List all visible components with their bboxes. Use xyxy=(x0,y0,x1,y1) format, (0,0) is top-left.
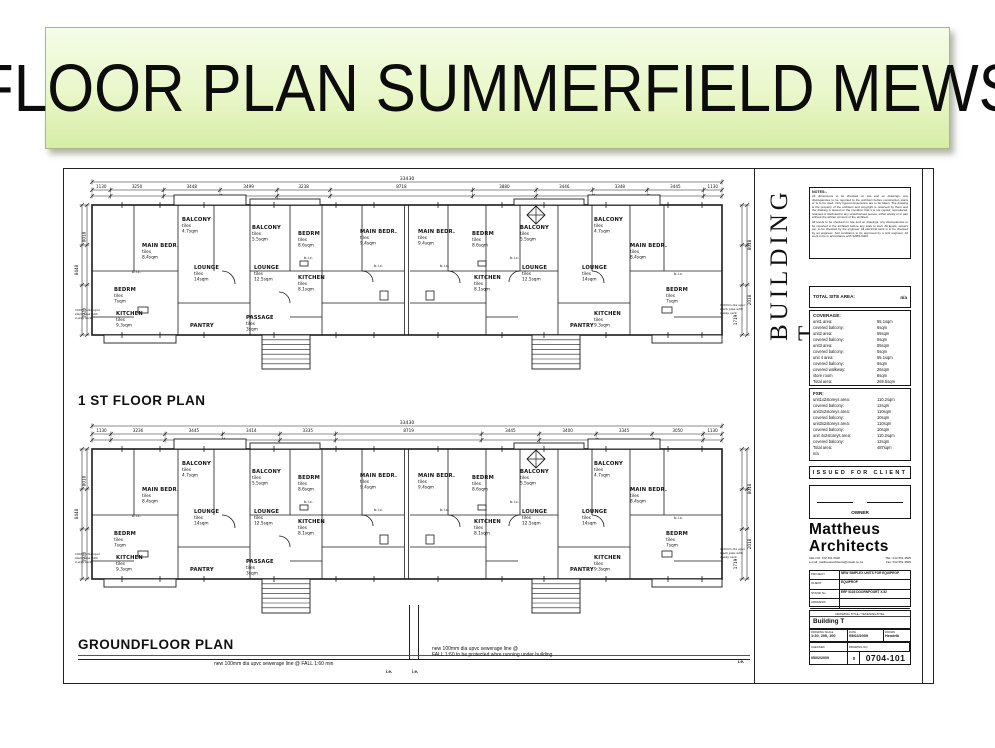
svg-text:tiles: tiles xyxy=(418,235,428,241)
svg-text:tiles: tiles xyxy=(298,525,308,531)
total-site-area-box: TOTAL SITE AREA: n/a xyxy=(809,286,911,308)
svg-text:tiles: tiles xyxy=(472,481,482,487)
svg-text:8018: 8018 xyxy=(82,231,87,242)
svg-text:tiles: tiles xyxy=(666,293,676,299)
project-table: PROJECTNEW SIMPLEX UNITS FOR EQUIPROPCLI… xyxy=(809,570,911,607)
svg-text:BEDRM: BEDRM xyxy=(666,531,688,537)
svg-text:8018: 8018 xyxy=(747,239,752,250)
svg-text:8.6sqm: 8.6sqm xyxy=(298,487,314,493)
date-value: 05/02/2009 xyxy=(849,634,882,638)
architect-firm-name: Mattheus Architects xyxy=(809,522,911,555)
svg-text:LOUNGE: LOUNGE xyxy=(522,509,547,515)
svg-text:7sqm: 7sqm xyxy=(114,543,126,549)
date-cell: DATE 05/02/2009 xyxy=(848,630,884,641)
svg-text:tiles: tiles xyxy=(474,525,484,531)
svg-text:KITCHEN: KITCHEN xyxy=(298,519,325,525)
svg-text:tiles: tiles xyxy=(116,317,126,323)
architect-contacts: CEL NO: 072 461 6620 TEL: 012 551 4505 e… xyxy=(809,557,911,565)
svg-text:8.6sqm: 8.6sqm xyxy=(298,243,314,249)
svg-text:9.4sqm: 9.4sqm xyxy=(418,485,434,491)
svg-text:tiles: tiles xyxy=(630,493,640,499)
issued-label: ISSUED FOR CLIENT xyxy=(813,470,908,476)
svg-text:3448: 3448 xyxy=(187,184,198,189)
svg-text:8.4sqm: 8.4sqm xyxy=(142,255,158,261)
svg-text:tiles: tiles xyxy=(582,515,592,521)
ie-mark: i.e. xyxy=(386,669,392,674)
ie-mark: i.e. xyxy=(738,659,744,664)
table-row: STAND NoERF 5135 DOORNPOORT X.52 xyxy=(810,590,910,599)
drawn-cell: DRAWN Hendrik xyxy=(884,630,910,641)
svg-text:2-way vent: 2-way vent xyxy=(75,316,93,320)
sewerage-note-right-line2: FALL 1:60 to be protected whre running u… xyxy=(432,652,552,658)
svg-text:tiles: tiles xyxy=(116,561,126,567)
svg-text:tiles: tiles xyxy=(594,467,604,473)
svg-text:9.3sqm: 9.3sqm xyxy=(116,567,132,573)
sewerage-line xyxy=(78,659,750,660)
svg-text:5.5sqm: 5.5sqm xyxy=(520,481,536,487)
svg-text:LOUNGE: LOUNGE xyxy=(194,265,219,271)
svg-text:3445: 3445 xyxy=(505,428,516,433)
svg-text:2018: 2018 xyxy=(747,294,752,305)
notes-box: NOTES:- All dimensions to be checked on … xyxy=(809,187,911,259)
svg-text:9.4sqm: 9.4sqm xyxy=(360,485,376,491)
svg-text:tiles: tiles xyxy=(142,249,152,255)
svg-text:tiles: tiles xyxy=(182,223,192,229)
table-row: Total area:269.5sqm xyxy=(813,379,907,385)
coverage-heading: COVERAGE: xyxy=(813,313,910,318)
svg-text:3445: 3445 xyxy=(670,184,681,189)
first-floor-plan-drawing: 3343011303250344834993238871838803446334… xyxy=(74,175,754,395)
svg-text:MAIN BEDR.: MAIN BEDR. xyxy=(360,473,397,479)
fsr-box: FSR: unit1x2storeys area:110.2sqmcovered… xyxy=(809,388,911,461)
svg-text:PANTRY: PANTRY xyxy=(190,323,214,329)
drawn-value: Hendrik xyxy=(885,634,909,638)
title-banner: FLOOR PLAN SUMMERFIELD MEWS xyxy=(45,27,950,149)
first-floor-plan-title: 1 ST FLOOR PLAN xyxy=(78,393,206,408)
svg-text:8448: 8448 xyxy=(74,264,79,275)
svg-text:b.i.c.: b.i.c. xyxy=(374,507,383,512)
sewerage-note-left: new 100mm dia upvc sewerage line @ FALL … xyxy=(214,661,333,667)
svg-text:BEDRM: BEDRM xyxy=(666,287,688,293)
svg-text:3445: 3445 xyxy=(189,428,200,433)
svg-text:tiles: tiles xyxy=(594,561,604,567)
svg-text:b.i.c.: b.i.c. xyxy=(674,271,683,276)
sewerage-note-right: new 100mm dia upvc sewerage line @ FALL … xyxy=(432,646,552,658)
svg-text:BALCONY: BALCONY xyxy=(182,217,211,223)
svg-text:8448: 8448 xyxy=(74,508,79,519)
svg-text:9.3sqm: 9.3sqm xyxy=(594,567,610,573)
svg-text:8.6sqm: 8.6sqm xyxy=(472,243,488,249)
title-block: NOTES:- All dimensions to be checked on … xyxy=(809,169,913,683)
svg-text:3sqm: 3sqm xyxy=(246,571,258,577)
svg-text:1719: 1719 xyxy=(733,314,738,325)
svg-text:tiles: tiles xyxy=(298,237,308,243)
svg-text:BALCONY: BALCONY xyxy=(252,225,281,231)
svg-text:tiles: tiles xyxy=(594,317,604,323)
svg-text:LOUNGE: LOUNGE xyxy=(194,509,219,515)
svg-text:b.i.c.: b.i.c. xyxy=(510,255,519,260)
table-row: n/a xyxy=(813,451,907,457)
svg-text:14sqm: 14sqm xyxy=(194,521,209,527)
svg-text:tiles: tiles xyxy=(194,515,204,521)
svg-text:BALCONY: BALCONY xyxy=(182,461,211,467)
contact-fax: Fax: 012 551 4505 xyxy=(886,561,911,565)
svg-text:MAIN BEDR.: MAIN BEDR. xyxy=(630,243,667,249)
svg-text:LOUNGE: LOUNGE xyxy=(582,509,607,515)
svg-text:3400: 3400 xyxy=(562,428,573,433)
svg-text:BALCONY: BALCONY xyxy=(594,217,623,223)
ground-floor-plan-drawing: 3343011303236344534143335871934453400334… xyxy=(74,419,754,639)
svg-text:LOUNGE: LOUNGE xyxy=(254,509,279,515)
svg-text:tiles: tiles xyxy=(522,515,532,521)
drawing-number-block: CHECKED DRAWING NO 05/02/2009 0 0704-101 xyxy=(809,642,911,665)
svg-text:7sqm: 7sqm xyxy=(114,299,126,305)
svg-text:PANTRY: PANTRY xyxy=(570,323,594,329)
svg-text:4.7sqm: 4.7sqm xyxy=(594,229,610,235)
svg-text:tiles: tiles xyxy=(666,537,676,543)
svg-text:tiles: tiles xyxy=(298,281,308,287)
contact-email: e-mail: mattheusarchitects@mweb.co.za xyxy=(809,561,863,565)
svg-text:tiles: tiles xyxy=(194,271,204,277)
svg-text:8018: 8018 xyxy=(747,483,752,494)
svg-text:KITCHEN: KITCHEN xyxy=(594,311,621,317)
svg-text:BEDRM: BEDRM xyxy=(114,287,136,293)
svg-text:3050: 3050 xyxy=(672,428,683,433)
svg-text:b.i.c.: b.i.c. xyxy=(440,507,449,512)
svg-text:2018: 2018 xyxy=(747,538,752,549)
svg-text:8.1sqm: 8.1sqm xyxy=(474,531,490,537)
svg-text:tiles: tiles xyxy=(182,467,192,473)
svg-text:b.i.c.: b.i.c. xyxy=(132,269,141,274)
checked-label: CHECKED xyxy=(810,643,848,652)
svg-text:9.4sqm: 9.4sqm xyxy=(418,241,434,247)
svg-text:tiles: tiles xyxy=(474,281,484,287)
ground-floor-plan-title: GROUNDFLOOR PLAN xyxy=(78,637,234,652)
fsr-table: unit1x2storeys area:110.2sqmcovered balc… xyxy=(810,397,910,457)
svg-text:b.i.c.: b.i.c. xyxy=(304,499,313,504)
svg-text:8.1sqm: 8.1sqm xyxy=(298,287,314,293)
svg-text:8.6sqm: 8.6sqm xyxy=(472,487,488,493)
svg-text:1719: 1719 xyxy=(733,558,738,569)
total-site-value: n/a xyxy=(900,295,907,300)
svg-text:5.5sqm: 5.5sqm xyxy=(252,481,268,487)
svg-text:8018: 8018 xyxy=(82,475,87,486)
drawing-number-value: 0704-101 xyxy=(860,652,910,665)
svg-text:3238: 3238 xyxy=(298,184,309,189)
svg-text:3345: 3345 xyxy=(619,428,630,433)
table-row: ADDRESS xyxy=(810,599,910,608)
svg-text:PASSAGE: PASSAGE xyxy=(246,559,274,565)
slide-title: FLOOR PLAN SUMMERFIELD MEWS xyxy=(0,50,995,127)
svg-text:LOUNGE: LOUNGE xyxy=(254,265,279,271)
svg-text:3880: 3880 xyxy=(499,184,510,189)
svg-text:8719: 8719 xyxy=(403,428,414,433)
svg-text:KITCHEN: KITCHEN xyxy=(474,275,501,281)
svg-text:3446: 3446 xyxy=(559,184,570,189)
svg-text:LOUNGE: LOUNGE xyxy=(582,265,607,271)
svg-text:tiles: tiles xyxy=(252,231,262,237)
scale-value: 1:20, 200, 100 xyxy=(811,634,846,638)
scale-cell: DRAWING SCALE 1:20, 200, 100 xyxy=(810,630,848,641)
svg-text:8.1sqm: 8.1sqm xyxy=(474,287,490,293)
svg-text:KITCHEN: KITCHEN xyxy=(116,555,143,561)
svg-text:12.5sqm: 12.5sqm xyxy=(522,277,541,283)
svg-text:tiles: tiles xyxy=(522,271,532,277)
sewerage-line xyxy=(78,655,750,656)
svg-text:b.i.c.: b.i.c. xyxy=(304,255,313,260)
svg-text:3250: 3250 xyxy=(132,184,143,189)
inner-frame-line xyxy=(922,169,923,683)
svg-text:tiles: tiles xyxy=(254,515,264,521)
svg-text:KITCHEN: KITCHEN xyxy=(298,275,325,281)
notes-paragraph: All levels to be checked on site and on … xyxy=(812,221,908,239)
svg-text:7sqm: 7sqm xyxy=(666,543,678,549)
svg-text:tiles: tiles xyxy=(520,475,530,481)
svg-text:tiles: tiles xyxy=(520,231,530,237)
svg-text:tiles: tiles xyxy=(360,235,370,241)
svg-text:5.5sqm: 5.5sqm xyxy=(520,237,536,243)
drawing-sheet: 3343011303250344834993238871838803446334… xyxy=(63,168,934,684)
svg-text:BEDRM: BEDRM xyxy=(298,231,320,237)
svg-text:MAIN BEDR.: MAIN BEDR. xyxy=(418,473,455,479)
firm-line1: Mattheus xyxy=(809,522,911,539)
fsr-heading: FSR: xyxy=(813,391,910,396)
svg-text:BALCONY: BALCONY xyxy=(520,469,549,475)
svg-text:3335: 3335 xyxy=(303,428,314,433)
svg-text:tiles: tiles xyxy=(472,237,482,243)
svg-text:BALCONY: BALCONY xyxy=(520,225,549,231)
svg-text:14sqm: 14sqm xyxy=(194,277,209,283)
drawing-no-label: DRAWING NO xyxy=(848,643,910,652)
svg-text:b.i.c.: b.i.c. xyxy=(674,515,683,520)
table-row: PROJECTNEW SIMPLEX UNITS FOR EQUIPROP xyxy=(810,571,910,580)
svg-text:b.i.c.: b.i.c. xyxy=(132,513,141,518)
ie-mark: i.e. xyxy=(412,669,418,674)
scale-date-drawn-row: DRAWING SCALE 1:20, 200, 100 DATE 05/02/… xyxy=(809,629,911,642)
svg-text:12.5sqm: 12.5sqm xyxy=(254,521,273,527)
svg-text:BALCONY: BALCONY xyxy=(594,461,623,467)
svg-text:tiles: tiles xyxy=(114,293,124,299)
svg-text:8.4sqm: 8.4sqm xyxy=(630,255,646,261)
svg-text:7sqm: 7sqm xyxy=(666,299,678,305)
svg-text:BEDRM: BEDRM xyxy=(472,475,494,481)
notes-text: All dimensions to be checked on site and… xyxy=(810,195,910,239)
notes-paragraph: All dimensions to be checked on site and… xyxy=(812,195,908,220)
svg-text:3414: 3414 xyxy=(246,428,257,433)
svg-text:4.7sqm: 4.7sqm xyxy=(182,229,198,235)
revision-value: 0 xyxy=(848,652,860,665)
svg-text:1130: 1130 xyxy=(96,184,107,189)
svg-text:tiles: tiles xyxy=(114,537,124,543)
svg-text:tiles: tiles xyxy=(360,479,370,485)
svg-text:14sqm: 14sqm xyxy=(582,521,597,527)
svg-text:MAIN BEDR.: MAIN BEDR. xyxy=(142,487,179,493)
svg-text:tiles: tiles xyxy=(252,475,262,481)
svg-text:33430: 33430 xyxy=(400,420,415,426)
table-row: CLIENTEQUIPROP xyxy=(810,580,910,589)
coverage-table: unit1 area:55.1sqmcovered balcony:6sqmun… xyxy=(810,319,910,385)
svg-text:MAIN BEDR.: MAIN BEDR. xyxy=(630,487,667,493)
drawing-title-value: Building T xyxy=(810,617,910,625)
svg-text:tiles: tiles xyxy=(418,479,428,485)
svg-text:12.5sqm: 12.5sqm xyxy=(254,277,273,283)
svg-text:14sqm: 14sqm xyxy=(582,277,597,283)
svg-text:MAIN BEDR.: MAIN BEDR. xyxy=(418,229,455,235)
svg-text:8.4sqm: 8.4sqm xyxy=(630,499,646,505)
svg-text:8718: 8718 xyxy=(396,184,407,189)
svg-text:b.i.c.: b.i.c. xyxy=(374,263,383,268)
svg-text:tiles: tiles xyxy=(142,493,152,499)
svg-text:2-way vent: 2-way vent xyxy=(75,560,93,564)
svg-text:5.5sqm: 5.5sqm xyxy=(252,237,268,243)
svg-text:BEDRM: BEDRM xyxy=(472,231,494,237)
owner-label: OWNER xyxy=(810,510,910,515)
svg-text:tiles: tiles xyxy=(246,565,256,571)
drawing-title-box: DRAWING TITLE / TEKENINGTITEL Building T xyxy=(809,610,911,629)
notes-heading: NOTES:- xyxy=(812,190,908,194)
svg-text:1130: 1130 xyxy=(707,428,718,433)
svg-text:9.3sqm: 9.3sqm xyxy=(594,323,610,329)
owner-box: OWNER xyxy=(809,485,911,519)
svg-text:KITCHEN: KITCHEN xyxy=(594,555,621,561)
svg-text:b.i.c.: b.i.c. xyxy=(510,499,519,504)
svg-text:3sqm: 3sqm xyxy=(246,327,258,333)
svg-text:3236: 3236 xyxy=(133,428,144,433)
svg-text:MAIN BEDR.: MAIN BEDR. xyxy=(360,229,397,235)
svg-text:9.4sqm: 9.4sqm xyxy=(360,241,376,247)
svg-text:1130: 1130 xyxy=(96,428,107,433)
svg-text:BEDRM: BEDRM xyxy=(298,475,320,481)
firm-line2: Architects xyxy=(809,539,911,556)
svg-text:3348: 3348 xyxy=(615,184,626,189)
svg-text:tiles: tiles xyxy=(246,321,256,327)
svg-text:8.4sqm: 8.4sqm xyxy=(142,499,158,505)
svg-text:tiles: tiles xyxy=(582,271,592,277)
svg-text:BALCONY: BALCONY xyxy=(252,469,281,475)
svg-text:BEDRM: BEDRM xyxy=(114,531,136,537)
svg-text:tiles: tiles xyxy=(630,249,640,255)
svg-text:PANTRY: PANTRY xyxy=(190,567,214,573)
svg-text:4.7sqm: 4.7sqm xyxy=(182,473,198,479)
svg-text:b.i.c.: b.i.c. xyxy=(440,263,449,268)
issued-for-client-box: ISSUED FOR CLIENT xyxy=(809,466,911,479)
date-passed-value: 05/02/2009 xyxy=(810,652,848,665)
svg-text:1130: 1130 xyxy=(708,184,719,189)
titleblock-divider xyxy=(754,169,755,683)
svg-text:tiles: tiles xyxy=(254,271,264,277)
svg-text:MAIN BEDR.: MAIN BEDR. xyxy=(142,243,179,249)
svg-text:8.1sqm: 8.1sqm xyxy=(298,531,314,537)
signature-lines xyxy=(810,502,910,503)
svg-text:2-way vent: 2-way vent xyxy=(720,311,738,315)
svg-text:9.3sqm: 9.3sqm xyxy=(116,323,132,329)
svg-text:12.5sqm: 12.5sqm xyxy=(522,521,541,527)
svg-text:4.7sqm: 4.7sqm xyxy=(594,473,610,479)
slide: FLOOR PLAN SUMMERFIELD MEWS 334301130325… xyxy=(0,0,995,748)
svg-text:tiles: tiles xyxy=(594,223,604,229)
total-site-label: TOTAL SITE AREA: xyxy=(813,294,859,299)
svg-text:KITCHEN: KITCHEN xyxy=(116,311,143,317)
svg-text:LOUNGE: LOUNGE xyxy=(522,265,547,271)
svg-text:2-way vent: 2-way vent xyxy=(720,555,738,559)
svg-text:33430: 33430 xyxy=(400,176,415,182)
svg-text:tiles: tiles xyxy=(298,481,308,487)
coverage-box: COVERAGE: unit1 area:55.1sqmcovered balc… xyxy=(809,310,911,386)
svg-text:PANTRY: PANTRY xyxy=(570,567,594,573)
svg-text:3499: 3499 xyxy=(243,184,254,189)
svg-text:PASSAGE: PASSAGE xyxy=(246,315,274,321)
svg-text:KITCHEN: KITCHEN xyxy=(474,519,501,525)
